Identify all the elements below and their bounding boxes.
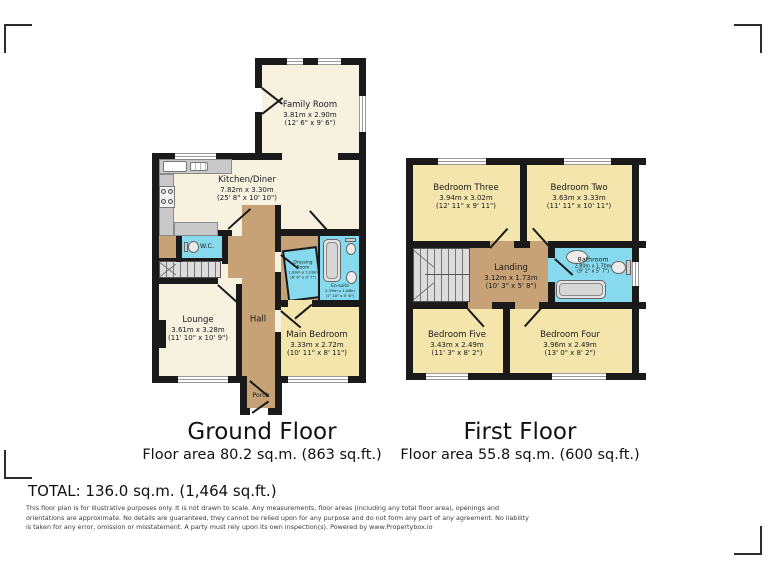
- room-name: Hall: [250, 315, 266, 326]
- room-dims-metric: 3.61m x 3.28m: [168, 326, 228, 335]
- hob-burner-icon: [161, 199, 166, 204]
- toilet-icon: [345, 238, 356, 242]
- wall: [155, 258, 228, 261]
- room-dims-imperial: (11' 3" x 8' 2"): [428, 349, 486, 358]
- sink-icon: [163, 161, 187, 172]
- room-dims-metric: 3.33m x 2.72m: [286, 341, 347, 350]
- first-floor-title: First Floor: [464, 419, 577, 445]
- room-label-bedroom-five: Bedroom Five 3.43m x 2.49m (11' 3" x 8' …: [428, 330, 486, 358]
- window: [438, 158, 486, 165]
- wall: [275, 229, 366, 236]
- room-dims-metric: 3.12m x 1.73m: [484, 274, 537, 283]
- room-name: Bedroom Three: [433, 183, 499, 194]
- crop-mark-top-left: [4, 24, 32, 53]
- room-label-bedroom-four: Bedroom Four 3.96m x 2.49m (13' 0" x 8' …: [540, 330, 600, 358]
- room-label-landing: Landing 3.12m x 1.73m (10' 3" x 5' 8"): [484, 263, 537, 291]
- room-label-porch: Porch: [252, 392, 269, 400]
- wall: [275, 205, 281, 252]
- window: [564, 158, 611, 165]
- room-name: Family Room: [283, 100, 337, 111]
- toilet-icon: [188, 241, 199, 253]
- room-label-bedroom-three: Bedroom Three 3.94m x 3.02m (12' 11" x 9…: [433, 183, 499, 211]
- window: [287, 58, 303, 65]
- total-area-label: TOTAL: 136.0 sq.m. (1,464 sq.ft.): [28, 482, 277, 500]
- door-opening: [282, 153, 338, 160]
- disclaimer-text: This floor plan is for illustrative purp…: [26, 504, 531, 533]
- hall-wc-side-area: [159, 236, 176, 258]
- ground-floor-area: Floor area 80.2 sq.m. (863 sq.ft.): [142, 447, 381, 463]
- room-dims-imperial: (10' 3" x 5' 8"): [484, 282, 537, 291]
- room-label-hall: Hall: [250, 315, 266, 326]
- room-name: Landing: [484, 263, 537, 274]
- room-label-kitchen-diner: Kitchen/Diner 7.82m x 3.30m (25' 8" x 10…: [217, 175, 277, 203]
- first-floor-area: Floor area 55.8 sq.m. (600 sq.ft.): [400, 447, 639, 463]
- floorplan-page: { "colors":{"wall":"#1a1a1a","cream":"#f…: [0, 0, 768, 576]
- wall: [255, 58, 262, 88]
- sink-drainer-icon: [190, 162, 208, 171]
- window: [426, 373, 468, 380]
- door-opening: [468, 302, 492, 309]
- door-opening: [515, 302, 539, 309]
- crop-mark-bottom-left: [4, 450, 32, 479]
- room-dims-metric: 3.81m x 2.90m: [283, 111, 337, 120]
- room-dims-imperial: (10' 11" x 8' 11"): [286, 349, 347, 358]
- room-label-en-suite: En-suite 2.39m x 1.68m (7' 10" x 5' 6"): [325, 284, 355, 298]
- chimney-breast: [152, 320, 166, 348]
- window: [632, 262, 639, 286]
- wall: [520, 164, 527, 241]
- wall: [152, 153, 159, 383]
- room-dims-imperial: (6' 6" x 3' 7"): [287, 275, 319, 279]
- room-dims-imperial: (12' 11" x 9' 11"): [433, 202, 499, 211]
- wall: [406, 241, 646, 248]
- toilet-icon: [346, 243, 356, 255]
- basin-icon: [346, 271, 357, 284]
- wall: [503, 309, 510, 373]
- hob-burner-icon: [168, 189, 173, 194]
- window: [288, 376, 348, 383]
- room-name: Main Bedroom: [286, 330, 347, 341]
- room-name: Bedroom Five: [428, 330, 486, 341]
- room-dims-imperial: (25' 8" x 10' 10"): [217, 194, 277, 203]
- room-label-main-bedroom: Main Bedroom 3.33m x 2.72m (10' 11" x 8'…: [286, 330, 347, 358]
- room-label-wc: W.C.: [200, 243, 214, 251]
- hall-side-area: [228, 236, 242, 278]
- window: [359, 96, 366, 132]
- room-name: Porch: [252, 392, 269, 400]
- hob-burner-icon: [168, 199, 173, 204]
- wall: [152, 278, 218, 284]
- room-dims-metric: 7.82m x 3.30m: [217, 186, 277, 195]
- hall-room: [242, 205, 275, 376]
- wall: [275, 332, 281, 376]
- room-dims-imperial: (12' 6" x 9' 6"): [283, 119, 337, 128]
- wall: [236, 284, 242, 376]
- room-dims-imperial: (9' 2" x 5' 7"): [575, 270, 612, 276]
- room-label-bedroom-two: Bedroom Two 3.63m x 3.33m (11' 11" x 10'…: [547, 183, 611, 211]
- wall: [406, 158, 413, 380]
- bathtub-icon: [323, 239, 341, 282]
- room-label-dressing-room: Dressing Room 1.99m x 1.09m (6' 6" x 3' …: [287, 260, 319, 279]
- room-dims-imperial: (7' 10" x 5' 6"): [325, 294, 355, 298]
- room-name: W.C.: [200, 243, 214, 251]
- wall: [255, 58, 366, 65]
- room-dims-metric: 3.94m x 3.02m: [433, 194, 499, 203]
- room-label-family-room: Family Room 3.81m x 2.90m (12' 6" x 9' 6…: [283, 100, 337, 128]
- room-dims-metric: 3.43m x 2.49m: [428, 341, 486, 350]
- window: [178, 376, 228, 383]
- room-dims-imperial: (13' 0" x 8' 2"): [540, 349, 600, 358]
- room-label-bathroom: Bathroom 2.80m x 1.70m (9' 2" x 5' 7"): [575, 256, 612, 275]
- room-dims-metric: 3.96m x 2.49m: [540, 341, 600, 350]
- room-name: Bathroom: [575, 256, 612, 264]
- window: [318, 58, 341, 65]
- room-name: Bedroom Two: [547, 183, 611, 194]
- room-label-lounge: Lounge 3.61m x 3.28m (11' 10" x 10' 9"): [168, 315, 228, 343]
- stairs-divider: [425, 274, 470, 275]
- ground-floor-title: Ground Floor: [187, 419, 336, 445]
- crop-mark-bottom-right: [734, 526, 762, 555]
- kitchen-counter: [174, 222, 218, 236]
- room-name: Lounge: [168, 315, 228, 326]
- window: [552, 373, 606, 380]
- toilet-icon: [626, 260, 631, 275]
- room-dims-metric: 3.63m x 3.33m: [547, 194, 611, 203]
- room-dims-imperial: (11' 11" x 10' 11"): [547, 202, 611, 211]
- room-name: Bedroom Four: [540, 330, 600, 341]
- crop-mark-top-right: [734, 24, 762, 53]
- hob-burner-icon: [161, 189, 166, 194]
- room-name: Kitchen/Diner: [217, 175, 277, 186]
- wall: [359, 153, 366, 383]
- toilet-icon: [611, 261, 626, 274]
- door-opening: [548, 258, 555, 282]
- bathtub-icon: [556, 280, 606, 299]
- room-dims-imperial: (11' 10" x 10' 9"): [168, 334, 228, 343]
